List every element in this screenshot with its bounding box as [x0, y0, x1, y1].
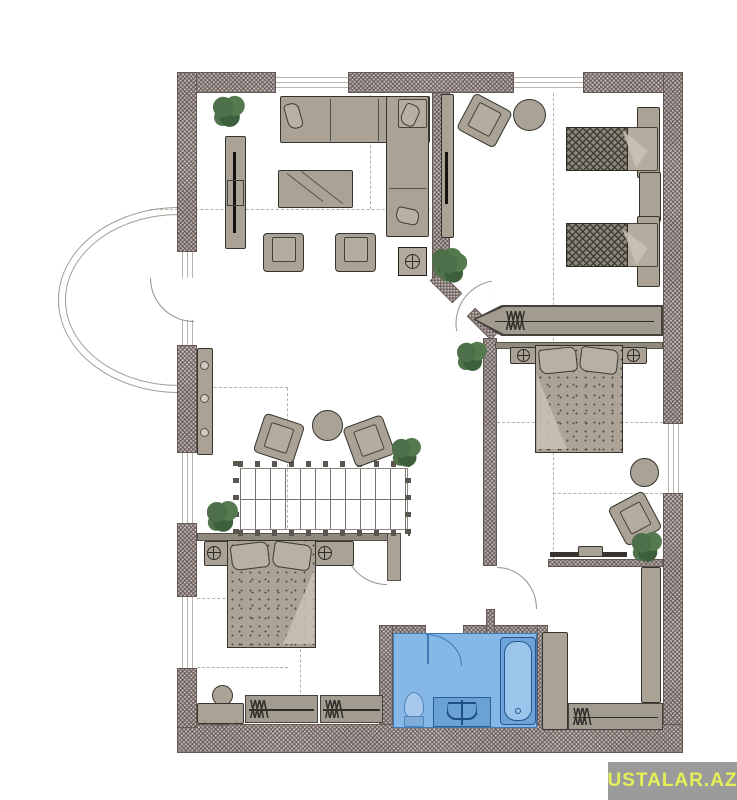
roof-dash-line	[197, 667, 288, 668]
dressing-rail	[568, 703, 663, 730]
staircase-posts-bottom	[238, 530, 410, 536]
wall-stub-below-stairs	[387, 533, 401, 581]
bath-faucet	[461, 700, 463, 725]
master-pillow	[579, 346, 620, 375]
sofa-seam	[378, 99, 379, 141]
hanger-marks	[327, 700, 376, 718]
bed2-pillow	[271, 540, 312, 571]
window-left-3	[179, 453, 195, 523]
floor-plan: USTALAR.AZ	[0, 0, 737, 800]
wall-left-mid2	[177, 523, 197, 597]
flower-pot-symbol	[405, 254, 420, 269]
hanger-marks	[575, 708, 656, 725]
bed2-pillow	[230, 541, 271, 571]
staircase-posts-right	[405, 461, 411, 536]
sofa-seam	[389, 188, 427, 189]
window-left-1	[179, 252, 195, 278]
roof-dash-line	[553, 493, 663, 494]
wall-left-upper	[177, 72, 197, 252]
master-door-arc	[497, 567, 537, 609]
watermark-badge: USTALAR.AZ	[608, 762, 737, 800]
master-pillow	[538, 346, 578, 375]
wall-right-lower	[663, 493, 683, 753]
staircase-posts-top	[238, 461, 410, 467]
vanity-curve	[203, 712, 238, 726]
window-left-2	[179, 320, 195, 345]
bathtub-drain	[515, 708, 521, 714]
toilet-bowl	[404, 692, 424, 719]
staircase-midline	[240, 499, 408, 500]
lamp-symbol	[627, 349, 640, 362]
sofa-seam	[330, 99, 331, 141]
plant	[213, 95, 245, 127]
dressing-cabinet-left	[542, 632, 568, 730]
kids-bed1-blanket	[566, 127, 628, 171]
hall-round-table	[312, 410, 343, 441]
tv-bracket	[227, 180, 244, 206]
lamp-symbol	[318, 546, 332, 560]
plant	[457, 341, 487, 371]
kids-round-table	[513, 99, 546, 131]
wardrobe-rail-master-inner	[476, 307, 661, 334]
watermark-text: USTALAR.AZ	[608, 770, 737, 792]
lamp-symbol	[207, 546, 221, 560]
kids-tv-screen	[445, 152, 448, 204]
window-left-4	[179, 597, 195, 668]
plant	[392, 437, 421, 467]
window-top-kids	[514, 73, 583, 92]
plant	[439, 252, 467, 283]
window-right	[665, 424, 681, 493]
shelf-knob	[200, 394, 209, 403]
bathroom-door-leaf	[427, 634, 429, 664]
shelf-knob	[200, 428, 209, 437]
plant	[632, 531, 662, 562]
bedroom2-rail-2	[320, 695, 383, 723]
plant	[207, 500, 238, 532]
wall-bath-stub	[486, 609, 495, 635]
wall-left-mid1	[177, 345, 197, 453]
wall-left-lower	[177, 668, 197, 728]
hanger-group	[250, 700, 271, 718]
wall-corridor-master	[483, 338, 497, 566]
pouf	[630, 458, 659, 487]
kids-bed2-blanket	[566, 223, 628, 267]
hanger-group	[325, 700, 346, 718]
toilet-tank	[404, 716, 424, 727]
laptop	[578, 546, 603, 557]
armchair-cushion	[344, 237, 368, 262]
wall-right-upper	[663, 72, 683, 424]
bedroom2-rail-1	[245, 695, 318, 723]
lamp-symbol	[517, 349, 530, 362]
dressing-cabinet-right	[641, 567, 661, 703]
hanger-marks	[508, 311, 655, 330]
shelf-knob	[200, 361, 209, 370]
kids-nightstand	[639, 172, 661, 222]
hanger-marks	[252, 700, 311, 718]
wall-top-mid	[348, 72, 514, 93]
window-top-living	[276, 73, 348, 92]
armchair-cushion	[272, 237, 296, 262]
